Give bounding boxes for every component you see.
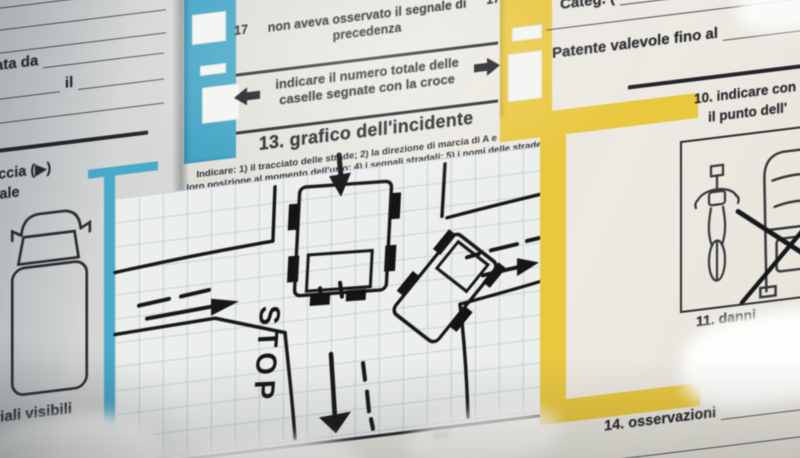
accident-form-photo: sciata da il al eccia (▶) iziale bbox=[0, 0, 800, 458]
right-arrow-icon bbox=[474, 56, 500, 77]
item-17-text: non aveva osservato il segnale di preced… bbox=[258, 0, 476, 53]
vehicle-b-drawing bbox=[385, 225, 508, 350]
total-boxes-text: indicare il numero totale delle caselle … bbox=[264, 53, 470, 111]
impact-point-note-line2: iziale bbox=[0, 184, 19, 204]
blank-field-line bbox=[0, 9, 166, 35]
motorcycle-front-icon bbox=[694, 160, 740, 288]
vehicle-b-checkbox-band bbox=[500, 0, 552, 123]
date-label: il bbox=[65, 74, 73, 92]
direction-arrow-south-road bbox=[319, 352, 351, 436]
impact-point-diagram-box bbox=[680, 120, 800, 314]
band-divider-mark bbox=[200, 63, 226, 76]
band-divider-mark-b bbox=[512, 24, 542, 42]
left-arrow-icon bbox=[234, 86, 260, 107]
section-divider bbox=[0, 130, 148, 156]
valid-until-blank bbox=[0, 102, 164, 124]
blank-field-line bbox=[0, 0, 166, 13]
licence-validity-label: Patente valevole fino al bbox=[552, 24, 718, 61]
yellow-frame-right bbox=[540, 131, 566, 412]
car-front-icon-with-x bbox=[746, 129, 800, 300]
item-17-number-right: 17 bbox=[476, 0, 500, 8]
checkbox-a-17 bbox=[192, 11, 226, 45]
category-label: Categ. ( bbox=[560, 0, 615, 13]
section-14-line bbox=[616, 430, 800, 458]
item-17-number-left: 17 bbox=[234, 21, 258, 38]
vehicle-a-drawing bbox=[284, 180, 402, 307]
issued-by-label: sciata da bbox=[0, 52, 38, 77]
paper-form: sciata da il al eccia (▶) iziale bbox=[0, 0, 800, 458]
truck-front-icon bbox=[0, 198, 102, 405]
impact-point-note-line1: eccia (▶) bbox=[0, 160, 51, 184]
checkbox-b-total bbox=[508, 50, 542, 102]
